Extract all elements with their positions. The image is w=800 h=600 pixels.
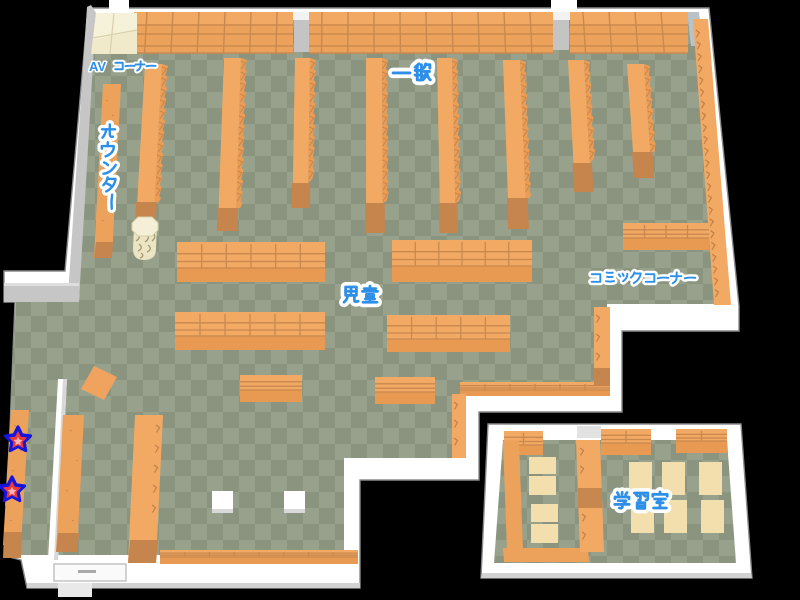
svg-text:AV: AV [89,59,106,74]
